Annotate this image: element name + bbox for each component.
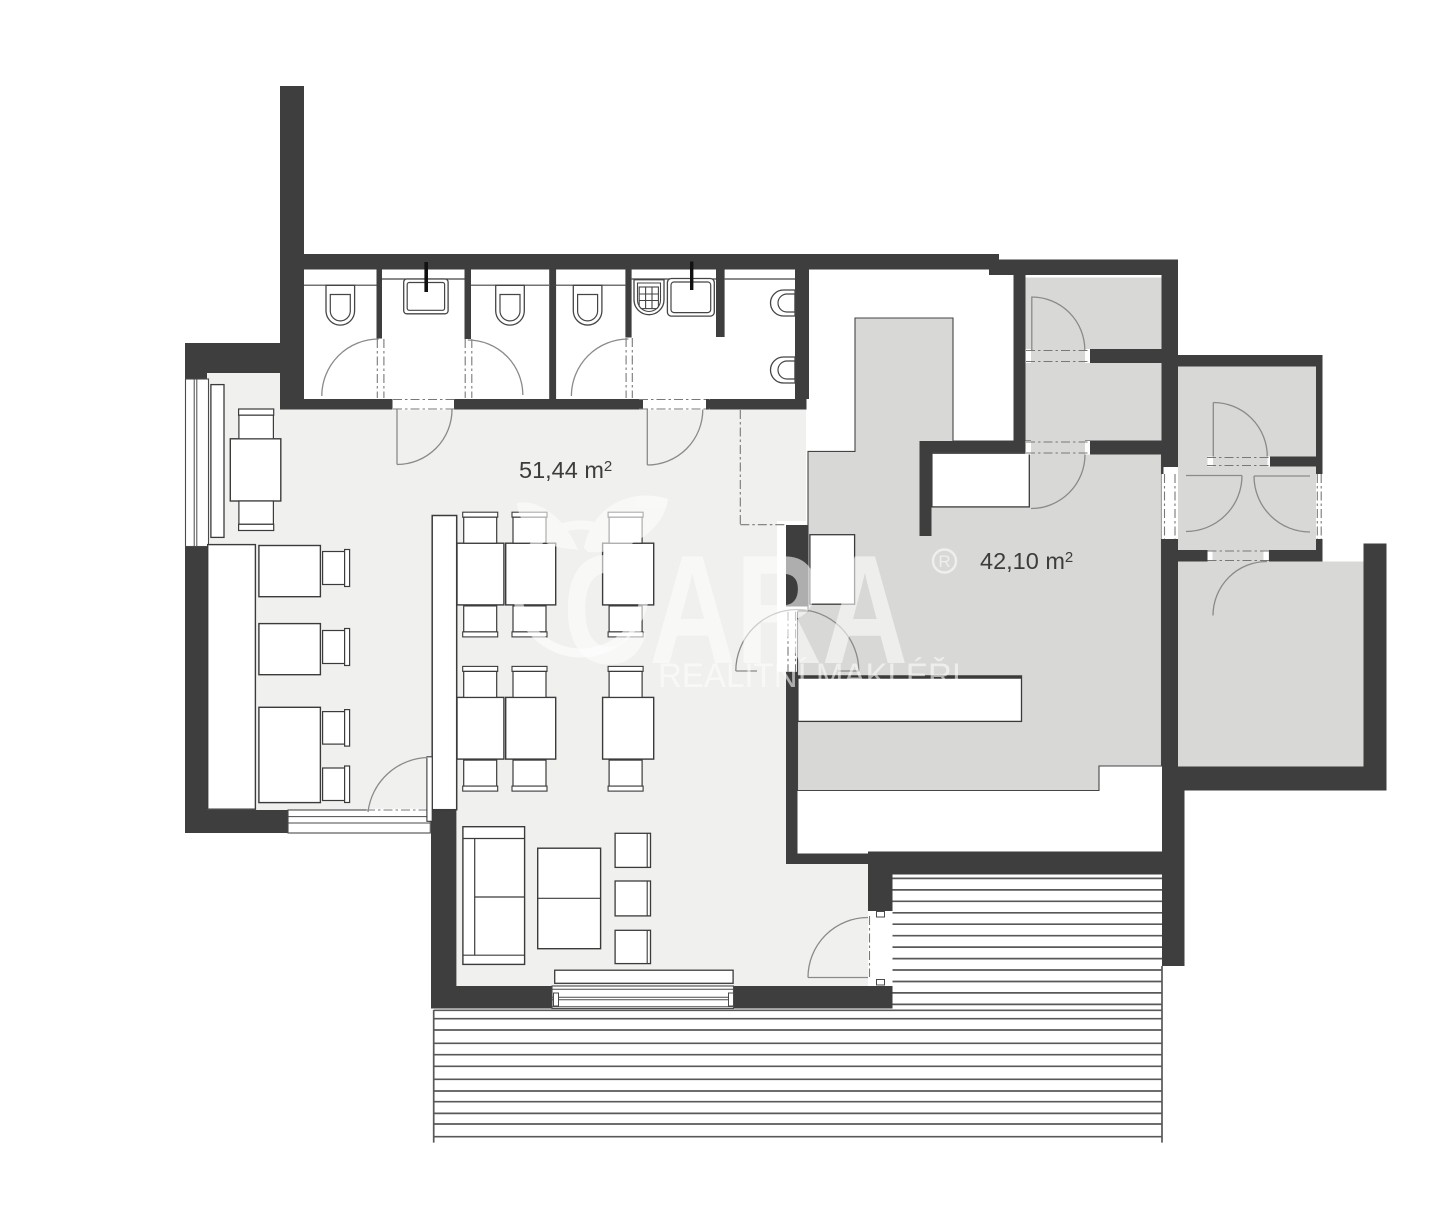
svg-text:51,44 m2: 51,44 m2 <box>519 457 612 483</box>
svg-text:42,10 m2: 42,10 m2 <box>980 548 1073 574</box>
svg-text:REALITNÍ MAKLÉŘI: REALITNÍ MAKLÉŘI <box>658 657 961 695</box>
svg-text:R: R <box>938 552 950 571</box>
